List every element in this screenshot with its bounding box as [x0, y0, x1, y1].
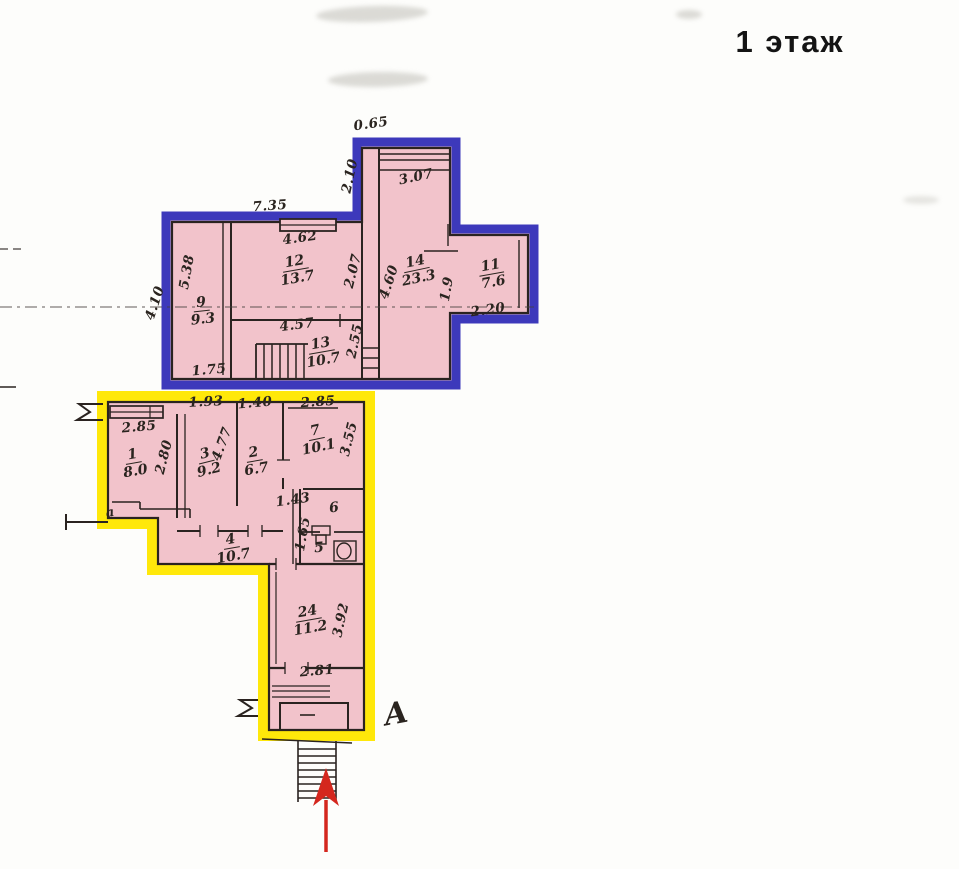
room-label-12: 12 13.7: [276, 251, 315, 289]
room-number: а: [102, 504, 119, 521]
dim-label: 2.81: [299, 662, 335, 681]
floor-title: 1 этаж: [736, 24, 845, 60]
room-label-13: 13 10.7: [302, 333, 341, 371]
dim-label: 7.35: [252, 197, 288, 215]
room-label-closet: а: [102, 504, 119, 521]
entrance-stairs: [262, 739, 352, 802]
room-label-6: 6: [325, 499, 343, 517]
room-number: 9: [192, 294, 209, 313]
room-label-24: 24 11.2: [289, 601, 328, 639]
dim-label: 1.75: [191, 361, 227, 380]
room-label-11: 11 7.6: [477, 256, 508, 293]
room-label-7: 7 10.1: [297, 419, 337, 458]
room-number: 6: [325, 499, 343, 517]
dim-label: 1.40: [237, 394, 273, 413]
floor-plan-page: 1 этаж 0.65 3.07 2.10 7.35 4.62 2.07 4.6…: [0, 0, 959, 869]
room-label-14: 14 23.3: [397, 250, 437, 289]
dim-label: 2.85: [121, 418, 157, 437]
room-label-4: 4 10.7: [212, 529, 251, 567]
room-number: 5: [310, 539, 327, 556]
room-label-9: 9 9.3: [188, 293, 216, 328]
dim-label: 1.93: [188, 393, 224, 411]
dim-label: 2.85: [300, 393, 336, 411]
room-label-5: 5: [310, 539, 327, 556]
entrance-arrow-icon: [313, 768, 339, 852]
room-area: 9.3: [190, 310, 216, 328]
